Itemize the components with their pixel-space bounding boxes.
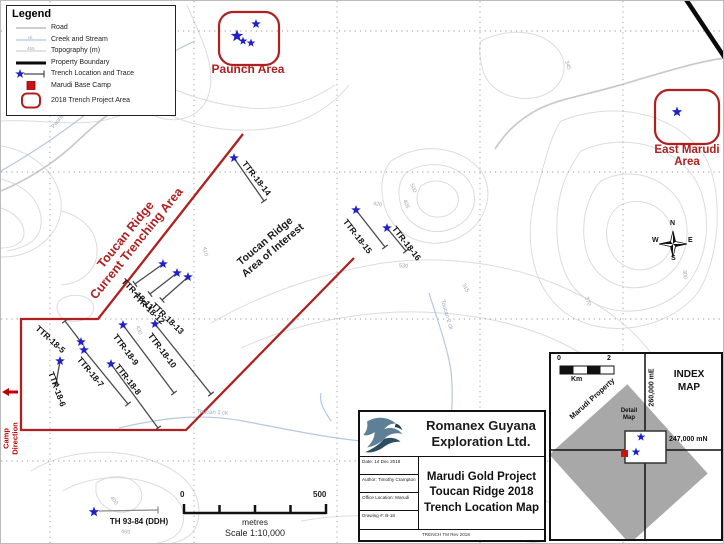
camp-direction-label: Camp Direction (3, 414, 20, 464)
compass-rose: N E S W (651, 223, 695, 267)
paunch-area-label: Paunch Area (204, 63, 292, 75)
company-logo-eagle-icon (360, 412, 418, 456)
detail-map-label: Detail Map (613, 408, 645, 422)
legend-item-camp: Marudi Base Camp (11, 80, 175, 92)
camp-line2: Direction (11, 414, 20, 464)
east-marudi-line2: Area (645, 156, 724, 168)
trench-star-TTR-18-14 (229, 153, 239, 162)
map-title-line3: Trench Location Map (419, 501, 544, 517)
legend-item-label: Property Boundary (51, 59, 109, 67)
contour-label-465: 465 (121, 529, 131, 536)
meta-cell-office: Office Location: Marudi (360, 493, 418, 511)
legend-item-project-area: 2018 Trench Project Area (11, 92, 175, 110)
legend-item-label: Topography (m) (51, 47, 100, 55)
company-line2: Exploration Ltd. (418, 434, 544, 450)
detail-line1: Detail (613, 408, 645, 415)
contour-label-300: 300 (681, 270, 688, 280)
trench-star-icon (11, 68, 51, 80)
contour-label-530: 530 (399, 263, 409, 270)
legend-panel: Legend Road ck Creek and Stream 465 Topo… (6, 5, 176, 116)
easting-label: 260,000 mE (649, 363, 656, 413)
title-block-header: Romanex Guyana Exploration Ltd. (360, 412, 544, 457)
scalebar-zero: 0 (180, 490, 184, 499)
ddh-trace (99, 510, 158, 511)
ddh-star (89, 507, 99, 517)
trench-trace-tick (171, 391, 177, 395)
compass-s: S (671, 255, 676, 262)
road-line-icon (11, 24, 51, 32)
title-block-body: Date: 14 Dec 2018 Author: Timothy Crampt… (360, 457, 544, 529)
legend-item-label: 2018 Trench Project Area (51, 97, 161, 105)
map-title: Marudi Gold Project Toucan Ridge 2018 Tr… (419, 457, 544, 529)
property-boundary-line (685, 1, 724, 61)
marudi-base-camp-square (621, 450, 628, 457)
detail-line2: Map (613, 415, 645, 422)
trench-trace (162, 277, 188, 300)
east-marudi-line1: East Marudi (645, 144, 724, 156)
paunch-star (247, 39, 256, 47)
trench-trace (65, 321, 81, 342)
east-marudi-star (672, 107, 682, 117)
title-block: Romanex Guyana Exploration Ltd. Date: 14… (358, 410, 546, 542)
km-zero-label: 0 (557, 355, 561, 362)
scalebar-ratio: Scale 1:10,000 (205, 528, 305, 538)
company-line1: Romanex Guyana (418, 418, 544, 434)
trench-trace-tick (261, 199, 267, 203)
meta-cell-author: Author: Timothy Crampton (360, 475, 418, 493)
ddh-label: TH 93-84 (DDH) (101, 517, 177, 526)
compass-e: E (688, 237, 693, 244)
legend-item-trench: Trench Location and Trace (11, 68, 175, 80)
compass-n: N (670, 220, 675, 227)
boundary-line-icon (11, 59, 51, 67)
east-marudi-area-label: East Marudi Area (645, 144, 724, 168)
legend-item-creek: ck Creek and Stream (11, 34, 175, 46)
index-km-bar (560, 366, 614, 374)
paunch-star (251, 19, 261, 28)
legend-item-label: Trench Location and Trace (51, 70, 134, 78)
paunch-star (239, 37, 248, 45)
index-title-line2: MAP (659, 381, 719, 394)
trench-star-TTR-18-15 (351, 205, 361, 214)
legend-item-topo: 465 Topography (m) (11, 45, 175, 57)
index-title-line1: INDEX (659, 368, 719, 381)
topo-line-icon: 465 (11, 46, 51, 55)
legend-item-label: Marudi Base Camp (51, 82, 111, 90)
detail-map-rect (625, 431, 666, 463)
svg-text:ck: ck (28, 35, 33, 40)
svg-text:465: 465 (27, 46, 35, 51)
title-block-footer: TRENCH TM Rev 2018 (360, 529, 544, 540)
scalebar-unit: metres (215, 517, 295, 527)
map-title-line2: Toucan Ridge 2018 (419, 485, 544, 501)
index-map-title: INDEX MAP (659, 368, 719, 394)
legend-item-road: Road (11, 22, 175, 34)
camp-direction-arrow (2, 388, 18, 396)
contour-label-420: 420 (373, 201, 383, 208)
trench-star-TTR-18-7 (79, 345, 89, 354)
legend-item-boundary: Property Boundary (11, 57, 175, 69)
trench-star-TTR-18-9 (118, 320, 128, 329)
index-map-panel: INDEX MAP Marudi Property 260,000 mE 247… (549, 352, 723, 541)
legend-item-label: Creek and Stream (51, 36, 108, 44)
northing-label: 247,000 mN (669, 436, 721, 443)
company-name: Romanex Guyana Exploration Ltd. (418, 418, 544, 450)
scalebar-marks (184, 504, 326, 514)
paunch-area-rect (219, 12, 279, 65)
scalebar-max: 500 (313, 490, 326, 499)
project-area-icon (11, 92, 51, 109)
km-two-label: 2 (607, 355, 611, 362)
legend-title: Legend (12, 8, 175, 20)
km-unit-label: Km (571, 376, 582, 383)
meta-cell-date: Date: 14 Dec 2018 (360, 457, 418, 475)
title-block-meta-cells: Date: 14 Dec 2018 Author: Timothy Crampt… (360, 457, 419, 529)
map-title-line1: Marudi Gold Project (419, 470, 544, 486)
meta-cell-drawing: Drawing #: B-18 (360, 511, 418, 529)
compass-w: W (652, 237, 659, 244)
creek-line-icon: ck (11, 35, 51, 44)
map-canvas: TTR-18-14TTR-18-15TTR-18-16TTR-18-11TTR-… (0, 0, 724, 544)
legend-item-label: Road (51, 24, 68, 32)
camp-square-icon (11, 80, 51, 91)
